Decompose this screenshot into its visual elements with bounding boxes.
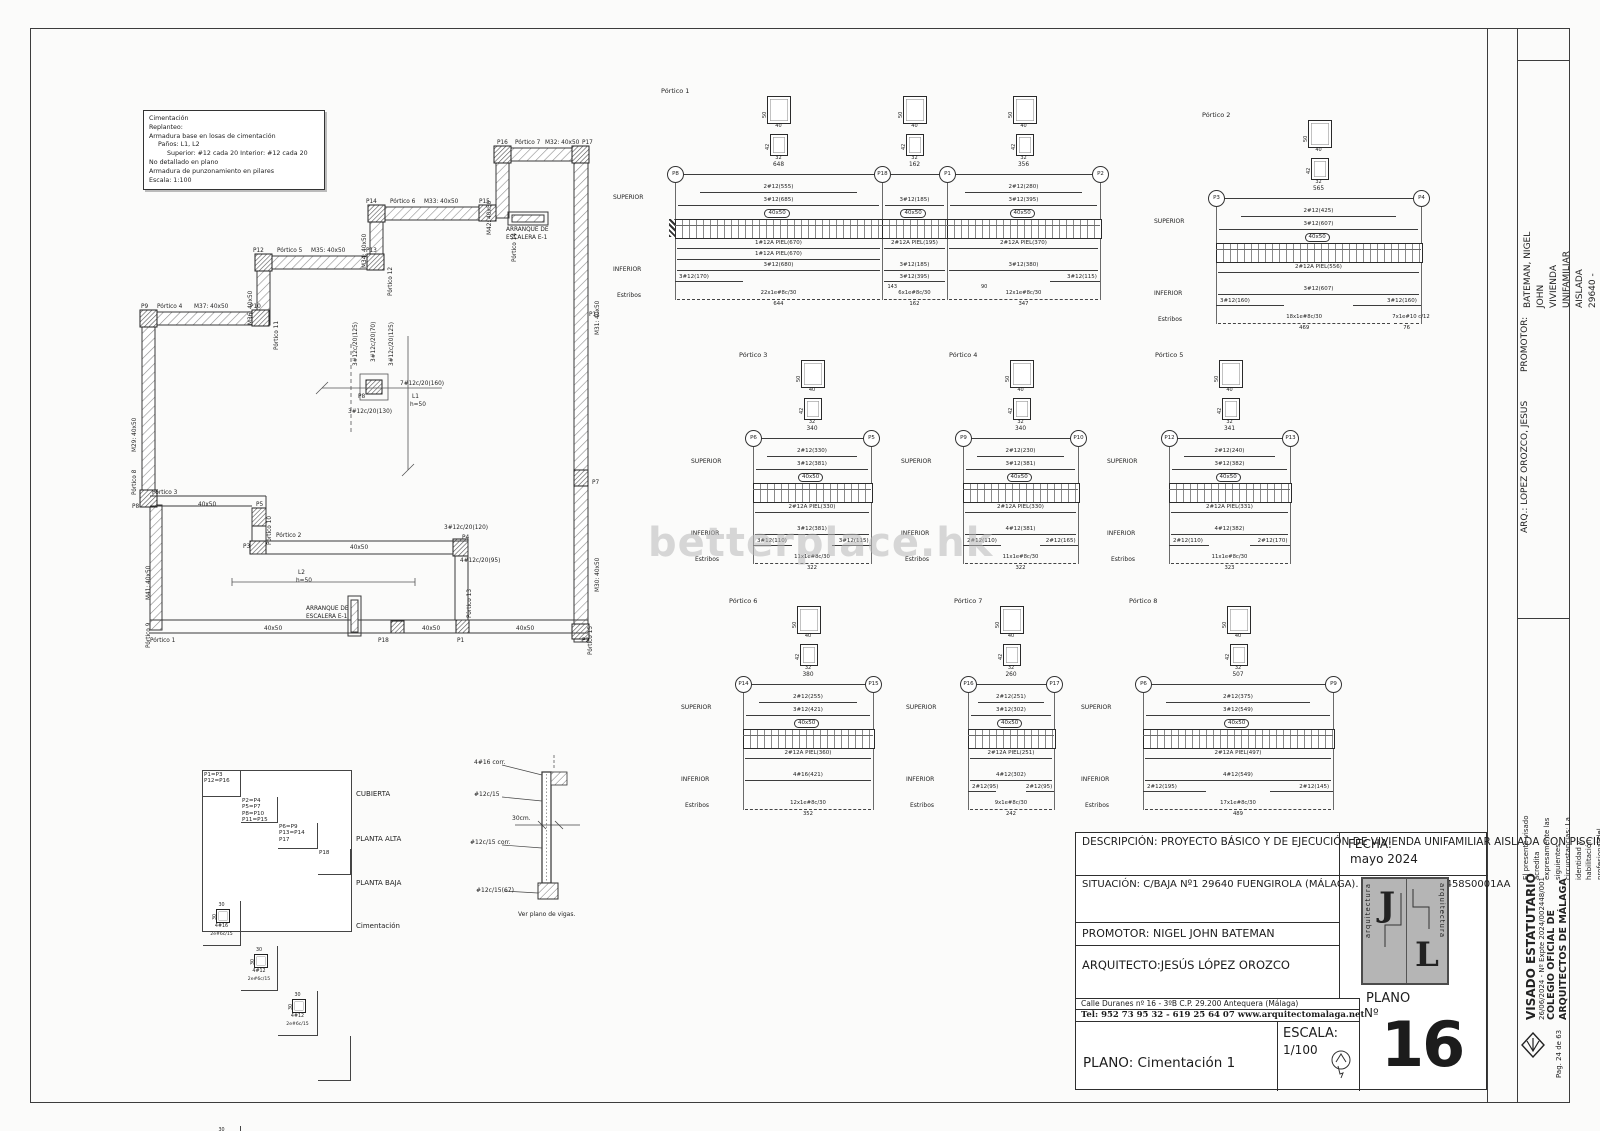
rebar-label: 2#12(110) bbox=[1173, 538, 1203, 545]
piel-label: 2#12A PIEL(556) bbox=[1216, 264, 1421, 271]
piel-line bbox=[970, 758, 1052, 759]
section-dim-label: 32 bbox=[1003, 665, 1019, 672]
beam-size-label: 40x50 bbox=[1007, 473, 1032, 482]
schedule-level-label: Cimentación bbox=[356, 922, 400, 930]
beam-size-label: 40x50 bbox=[1216, 473, 1241, 482]
section-dim-label: 32 bbox=[770, 155, 786, 162]
plan-label: L1 bbox=[412, 394, 419, 401]
rebar-label: 2#12(280) bbox=[947, 184, 1100, 191]
plan-label: P3 bbox=[243, 544, 250, 551]
support-guide bbox=[1078, 446, 1079, 564]
piel-line bbox=[745, 758, 871, 759]
row-label-inferior: INFERIOR bbox=[1154, 290, 1182, 297]
beam-band bbox=[1143, 729, 1335, 749]
rebar-label: 2#12(425) bbox=[1216, 208, 1421, 215]
plan-label: 40x50 bbox=[516, 626, 534, 633]
plan-label: Pórtico 7 bbox=[515, 140, 540, 147]
rebar-line bbox=[950, 205, 1097, 206]
rebar-label: 2#12(145) bbox=[1261, 784, 1329, 791]
plan-label: M42: 40x50 bbox=[487, 201, 494, 235]
margin-visado-block: VISADO ESTATUTARIO 26/06/2024 - Nº Expte… bbox=[1524, 873, 1570, 1020]
tb-line bbox=[1339, 833, 1340, 998]
portico-title: Pórtico 8 bbox=[1129, 598, 1157, 605]
section-dim-label: 40 bbox=[767, 123, 789, 130]
piel-line bbox=[1145, 758, 1331, 759]
visado-expte: 26/06/2024 - Nº Expte 2024/002448/001 bbox=[1538, 873, 1546, 1020]
frame-top bbox=[30, 28, 1570, 29]
stirrup-dim-line bbox=[884, 299, 945, 300]
rebar-line bbox=[753, 545, 792, 546]
piel-line bbox=[677, 259, 880, 260]
stirrup-dim-line bbox=[755, 563, 869, 564]
rebar-label: 3#12(549) bbox=[1143, 707, 1333, 714]
rebar-line bbox=[1270, 791, 1333, 792]
rebar-line bbox=[746, 715, 870, 716]
rebar-line bbox=[675, 281, 743, 282]
piel-label: 2#12A PIEL(195) bbox=[882, 240, 947, 247]
row-label-inferior: INFERIOR bbox=[1081, 776, 1109, 783]
tb-arquitecto: ARQUITECTO:JESÚS LÓPEZ OROZCO bbox=[1082, 958, 1290, 972]
plan-label: Pórtico 1 bbox=[150, 638, 175, 645]
piel-label: 2#12A PIEL(360) bbox=[743, 750, 873, 757]
piel-line bbox=[965, 512, 1076, 513]
rebar-line bbox=[1026, 791, 1054, 792]
plan-label: P12 bbox=[253, 248, 264, 255]
rebar-line bbox=[968, 791, 996, 792]
plan-label: Pórtico 12 bbox=[388, 267, 395, 296]
rebar-line bbox=[1050, 281, 1100, 282]
foundation-plan bbox=[120, 130, 620, 680]
wall-section-detail: 4#16 corr. #12c/15 30cm. #12c/15 corr. #… bbox=[460, 745, 670, 960]
section-dim-label: 40 bbox=[1013, 123, 1035, 130]
rebar-label: 3#12(160) bbox=[1343, 298, 1417, 305]
column-section-big bbox=[1219, 360, 1243, 388]
beam-band-axis bbox=[1143, 735, 1333, 736]
span-length-label: 648 bbox=[675, 162, 882, 169]
section-dim-label: 40 bbox=[1219, 387, 1241, 394]
plan-label: M30: 40x50 bbox=[595, 558, 602, 592]
rebar-line bbox=[970, 780, 1052, 781]
frame-left bbox=[30, 28, 31, 1103]
jl-logo: arquitectura arquitectura J L bbox=[1361, 877, 1449, 985]
plan-label: h=50 bbox=[296, 578, 312, 585]
stirrup-dim-line bbox=[745, 809, 871, 810]
tb-fecha-value: mayo 2024 bbox=[1350, 852, 1418, 866]
rebar-label: 3#12(381) bbox=[753, 461, 871, 468]
schedule-header-cell: P1=P3 P12=P16 bbox=[203, 771, 241, 797]
tb-line bbox=[1076, 1021, 1359, 1022]
beam-band-axis bbox=[1216, 249, 1421, 250]
margin-arquitecto: ARQ.: LOPEZ OROZCO, JESUS bbox=[1522, 401, 1529, 533]
wall-label-horiz: #12c/15 corr. bbox=[470, 839, 511, 846]
piel-label: 1#12A PIEL(670) bbox=[675, 240, 882, 247]
column-section-big bbox=[1013, 96, 1037, 124]
cell-dim-left: 30 bbox=[250, 959, 257, 965]
schedule-header-cell: P6=P9 P13=P14 P17 bbox=[278, 823, 318, 849]
cell-bars: 4#16 bbox=[203, 923, 240, 930]
column-section-small bbox=[804, 398, 822, 420]
tb-line bbox=[1076, 945, 1339, 946]
row-label-inferior: INFERIOR bbox=[906, 776, 934, 783]
schedule-cell bbox=[318, 1036, 351, 1081]
rebar-label: 3#12(382) bbox=[1169, 461, 1290, 468]
plan-label: P17 bbox=[582, 140, 593, 147]
support-line bbox=[1169, 438, 1290, 439]
rebar-line bbox=[1241, 216, 1397, 217]
rebar-label: 3#12(115) bbox=[826, 538, 868, 545]
section-dim-label: 50 bbox=[995, 622, 1002, 628]
row-label-inferior: INFERIOR bbox=[681, 776, 709, 783]
section-dim-label: 42 bbox=[1306, 168, 1313, 174]
stirrup-label: 12x1e#8c/30 bbox=[743, 800, 873, 807]
row-label-inferior: INFERIOR bbox=[901, 530, 929, 537]
tb-fecha-label: FECHA: bbox=[1348, 837, 1392, 851]
cell-dim-top: 30 bbox=[203, 1127, 240, 1131]
row-label-superior: SUPERIOR bbox=[906, 704, 936, 711]
beam-size-label: 40x50 bbox=[900, 209, 925, 218]
portico: Pórtico 5P12P13341504042322#12(240)3#12(… bbox=[1107, 352, 1363, 584]
frame-margin-divider bbox=[1517, 28, 1518, 1102]
plan-label: 40x50 bbox=[264, 626, 282, 633]
section-dim-label: 40 bbox=[797, 633, 819, 640]
drawing-sheet: CimentaciónReplanteo:Armadura base en lo… bbox=[0, 0, 1600, 1131]
tb-tel: Tel: 952 73 95 32 - 619 25 64 07 www.arq… bbox=[1081, 1010, 1364, 1020]
dim-annotation: 143 bbox=[888, 284, 898, 291]
beam-size-label: 40x50 bbox=[997, 719, 1022, 728]
tb-plano-name: PLANO: Cimentación 1 bbox=[1083, 1055, 1235, 1071]
span-length-label: 341 bbox=[1169, 426, 1290, 433]
stirrup-dim-line bbox=[949, 299, 1098, 300]
beam-band-axis bbox=[753, 489, 871, 490]
rebar-line bbox=[1184, 456, 1276, 457]
section-dim-label: 40 bbox=[1010, 387, 1032, 394]
rebar-label: 3#12(395) bbox=[947, 197, 1100, 204]
cell-stirrups: 2e#6c/15 bbox=[203, 931, 240, 938]
beam-band-axis bbox=[947, 225, 1100, 226]
section-dim-label: 32 bbox=[1016, 155, 1032, 162]
plan-label: 3#12c/20(125) bbox=[353, 322, 360, 366]
rebar-line bbox=[767, 456, 857, 457]
column-section-small bbox=[1222, 398, 1240, 420]
rebar-line bbox=[1169, 545, 1209, 546]
rebar-label: 3#12(421) bbox=[743, 707, 873, 714]
rebar-line bbox=[971, 715, 1051, 716]
plan-label: P18 bbox=[378, 638, 389, 645]
rebar-label: 3#12(381) bbox=[753, 526, 871, 533]
support-line bbox=[963, 438, 1078, 439]
section-dim-label: 50 bbox=[792, 622, 799, 628]
stirrup-label: 17x1e#8c/30 bbox=[1143, 800, 1333, 807]
rebar-label: 2#12(95) bbox=[972, 784, 998, 791]
column-section-big bbox=[1308, 120, 1332, 148]
row-label-superior: SUPERIOR bbox=[681, 704, 711, 711]
beam-size-label: 40x50 bbox=[1224, 719, 1249, 728]
column-section-big bbox=[1227, 606, 1251, 634]
section-dim-label: 32 bbox=[1311, 179, 1327, 186]
rebar-line bbox=[745, 780, 871, 781]
plan-label: Pórtico 2 bbox=[276, 533, 301, 540]
stirrup-label: 7x1e#10 c/12 bbox=[1392, 314, 1421, 321]
span-length-label: 380 bbox=[743, 672, 873, 679]
rebar-line bbox=[963, 545, 1001, 546]
piel-line bbox=[1218, 272, 1419, 273]
section-dim-label: 32 bbox=[1013, 419, 1029, 426]
column-section-small bbox=[1016, 134, 1034, 156]
section-dim-label: 40 bbox=[1308, 147, 1330, 154]
column-section-small bbox=[906, 134, 924, 156]
rebar-line bbox=[1166, 702, 1310, 703]
rebar-line bbox=[965, 192, 1081, 193]
section-dim-label: 42 bbox=[1217, 408, 1224, 414]
column-section-small bbox=[770, 134, 788, 156]
support-guide bbox=[1421, 206, 1422, 324]
rebar-label: 2#12(255) bbox=[743, 694, 873, 701]
stirrup-label: 11x1e#8c/30 bbox=[963, 554, 1078, 561]
visado-title: VISADO ESTATUTARIO bbox=[1524, 873, 1538, 1020]
piel-label: 2#12A PIEL(331) bbox=[1169, 504, 1290, 511]
rebar-label: 3#12(302) bbox=[968, 707, 1054, 714]
rebar-label: 2#12(110) bbox=[967, 538, 997, 545]
rebar-label: 2#12(251) bbox=[968, 694, 1054, 701]
column-schedule-table: P1=P3 P12=P16P2=P4 P5=P7 P8=P10 P11=P15P… bbox=[202, 770, 352, 932]
plan-label: 3#12c/20(70) bbox=[371, 322, 378, 362]
plan-label: M41: 40x50 bbox=[146, 566, 153, 600]
rebar-label: 3#12(680) bbox=[675, 262, 882, 269]
support-guide bbox=[873, 692, 874, 810]
stirrup-total: 644 bbox=[675, 301, 882, 308]
schedule-cell: 30304#162e#6c/15 bbox=[203, 901, 241, 946]
stirrup-label: 18x1e#8c/30 bbox=[1216, 314, 1392, 321]
rebar-label: 4#12(381) bbox=[963, 526, 1078, 533]
plan-label: ARRANQUE DE bbox=[306, 606, 349, 613]
wall-label-bars: 4#16 corr. bbox=[474, 759, 506, 766]
rebar-line bbox=[1171, 534, 1288, 535]
section-dim-label: 42 bbox=[795, 654, 802, 660]
rebar-line bbox=[832, 545, 871, 546]
tb-plano-num: 16 bbox=[1381, 1008, 1463, 1081]
plan-label: 40x50 bbox=[422, 626, 440, 633]
portico: Pórtico 8P6P9507504042322#12(375)3#12(54… bbox=[1081, 598, 1406, 830]
stirrup-total: 162 bbox=[882, 301, 947, 308]
beam-band-axis bbox=[675, 225, 882, 226]
portico-title: Pórtico 7 bbox=[954, 598, 982, 605]
beam-band bbox=[947, 219, 1102, 239]
cell-bars: 4#12 bbox=[278, 1013, 317, 1020]
rebar-line bbox=[1145, 780, 1331, 781]
rebar-label: 2#12(555) bbox=[675, 184, 882, 191]
portico: Pórtico 1P8P18P1P2648504042322#12(555)3#… bbox=[613, 88, 1173, 320]
tb-line bbox=[1277, 1021, 1278, 1091]
rebar-line bbox=[678, 205, 879, 206]
note-line: Cimentación bbox=[149, 115, 319, 124]
stirrup-label: 9x1e#8c/30 bbox=[968, 800, 1054, 807]
plan-label: M36: 40x50 bbox=[248, 291, 255, 325]
beam-size-label: 40x50 bbox=[1010, 209, 1035, 218]
rebar-line bbox=[966, 469, 1075, 470]
rebar-line bbox=[1216, 305, 1284, 306]
beam-band bbox=[882, 219, 949, 239]
plan-label: P11 bbox=[589, 312, 600, 319]
row-label-inferior: INFERIOR bbox=[1107, 530, 1135, 537]
stirrup-label: 22x1e#8c/30 bbox=[675, 290, 882, 297]
rebar-line bbox=[949, 270, 1098, 271]
rebar-label: 3#12(381) bbox=[963, 461, 1078, 468]
rebar-line bbox=[977, 456, 1064, 457]
plan-label: P1 bbox=[457, 638, 464, 645]
section-dim-label: 50 bbox=[898, 112, 905, 118]
rebar-label: 3#12(160) bbox=[1220, 298, 1250, 305]
plan-label: M29: 40x50 bbox=[132, 418, 139, 452]
row-label-estribos: Estribos bbox=[695, 556, 719, 563]
stirrup-total: 242 bbox=[968, 811, 1054, 818]
wall-label-note: Ver plano de vigas. bbox=[518, 911, 575, 918]
plan-label: ARRANQUE DE bbox=[506, 227, 549, 234]
stirrup-label: 6x1e#8c/30 bbox=[882, 290, 947, 297]
stirrup-label: 11x1e#8c/30 bbox=[753, 554, 871, 561]
rebar-line bbox=[1172, 469, 1287, 470]
column-section-small bbox=[1230, 644, 1248, 666]
margin-page-number: Pag. 24 de 63 bbox=[1556, 1030, 1563, 1078]
piel-label: 2#12A PIEL(497) bbox=[1143, 750, 1333, 757]
rebar-label: 3#12(685) bbox=[675, 197, 882, 204]
rebar-line bbox=[885, 205, 944, 206]
row-label-estribos: Estribos bbox=[905, 556, 929, 563]
column-section-big bbox=[767, 96, 791, 124]
row-label-superior: SUPERIOR bbox=[1081, 704, 1111, 711]
beam-size-label: 40x50 bbox=[764, 209, 789, 218]
plan-label: ESCALERA E-1 bbox=[506, 235, 547, 242]
section-dim-label: 42 bbox=[1225, 654, 1232, 660]
plan-label: 40x50 bbox=[198, 502, 216, 509]
column-section-small bbox=[1311, 158, 1329, 180]
beam-band-axis bbox=[1169, 489, 1290, 490]
section-dim-label: 50 bbox=[1214, 376, 1221, 382]
section-dim-label: 32 bbox=[1230, 665, 1246, 672]
beam-band bbox=[968, 729, 1056, 749]
span-length-label: 356 bbox=[947, 162, 1100, 169]
visado-colegio: COLEGIO OFICIAL DE ARQUITECTOS DE MÁLAGA bbox=[1546, 873, 1570, 1020]
cell-dim-left: 30 bbox=[212, 914, 219, 920]
plan-label: M32: 40x50 bbox=[545, 140, 579, 147]
rebar-label: 2#12(330) bbox=[753, 448, 871, 455]
margin-tick-mid bbox=[1517, 618, 1569, 619]
cell-dim-top: 30 bbox=[278, 992, 317, 999]
portico-title: Pórtico 5 bbox=[1155, 352, 1183, 359]
plan-label: Pórtico 11 bbox=[274, 321, 281, 350]
section-dim-label: 32 bbox=[800, 665, 816, 672]
margin-tick-top bbox=[1517, 60, 1569, 61]
stirrup-label: 12x1e#8c/30 bbox=[947, 290, 1100, 297]
section-dim-label: 32 bbox=[1222, 419, 1238, 426]
beam-band-axis bbox=[743, 735, 873, 736]
span-length-label: 162 bbox=[882, 162, 947, 169]
beam-band bbox=[753, 483, 873, 503]
wall-label-width: 30cm. bbox=[512, 815, 531, 822]
beam-size-label: 40x50 bbox=[794, 719, 819, 728]
rebar-line bbox=[1353, 305, 1421, 306]
beam-band-axis bbox=[968, 735, 1054, 736]
support-line bbox=[1216, 198, 1421, 199]
cell-dim-top: 30 bbox=[203, 902, 240, 909]
rebar-line bbox=[1219, 229, 1418, 230]
tb-escala-value: 1/100 bbox=[1283, 1043, 1318, 1057]
cell-bars: 4#12 bbox=[241, 968, 277, 975]
beam-band bbox=[675, 219, 884, 239]
beam-size-label: 40x50 bbox=[1305, 233, 1330, 242]
plan-label: M33: 40x50 bbox=[424, 199, 458, 206]
portico-title: Pórtico 2 bbox=[1202, 112, 1230, 119]
wall-section-graphic bbox=[460, 745, 670, 960]
schedule-level-label: PLANTA BAJA bbox=[356, 879, 401, 887]
beam-size-label: 40x50 bbox=[798, 473, 823, 482]
stirrup-total: 489 bbox=[1143, 811, 1333, 818]
plan-label: 4#12c/20(95) bbox=[460, 558, 500, 565]
section-dim-label: 50 bbox=[1303, 136, 1310, 142]
beam-band bbox=[1216, 243, 1423, 263]
plan-label: Pórtico 4 bbox=[157, 304, 182, 311]
stirrup-dim-line bbox=[677, 299, 880, 300]
piel-line bbox=[1171, 512, 1288, 513]
tb-address: Calle Duranes nº 16 - 3ºB C.P. 29.200 An… bbox=[1081, 999, 1298, 1008]
rebar-label: 3#12(185) bbox=[882, 197, 947, 204]
rebar-line bbox=[756, 469, 868, 470]
wall-label-foot: #12c/15(67) bbox=[476, 887, 514, 894]
plan-label: ESCALERA E-1 bbox=[306, 614, 347, 621]
piel-label: 2#12A PIEL(251) bbox=[968, 750, 1054, 757]
plan-label: P8 bbox=[358, 394, 365, 401]
rebar-label: 2#12(95) bbox=[1021, 784, 1052, 791]
rebar-label: 3#12(110) bbox=[757, 538, 787, 545]
stirrup-total: 323 bbox=[1169, 565, 1290, 572]
rebar-line bbox=[1040, 545, 1078, 546]
plan-label: 3#12c/20(130) bbox=[348, 409, 392, 416]
row-label-estribos: Estribos bbox=[1111, 556, 1135, 563]
rebar-label: 2#12(375) bbox=[1143, 694, 1333, 701]
row-label-estribos: Estribos bbox=[685, 802, 709, 809]
span-length-label: 340 bbox=[753, 426, 871, 433]
rebar-label: 2#12(170) bbox=[1244, 538, 1288, 545]
section-dim-label: 40 bbox=[1227, 633, 1249, 640]
margin-promotor-value: BATEMAN, NIGEL JOHN VIVIENDA UNIFAMILIAR… bbox=[1522, 230, 1600, 308]
stirrup-dim-line bbox=[1145, 809, 1331, 810]
plan-label: h=50 bbox=[410, 402, 426, 409]
cell-stirrups: 2e#6c/15 bbox=[241, 976, 277, 983]
beam-band bbox=[743, 729, 875, 749]
row-label-inferior: INFERIOR bbox=[691, 530, 719, 537]
piel-line bbox=[949, 248, 1098, 249]
span-length-label: 507 bbox=[1143, 672, 1333, 679]
plan-label: P8 bbox=[132, 504, 139, 511]
column-section-small bbox=[800, 644, 818, 666]
tb-escala-label: ESCALA: bbox=[1283, 1026, 1338, 1041]
schedule-level-label: CUBIERTA bbox=[356, 790, 390, 798]
beam-band bbox=[963, 483, 1080, 503]
section-dim-label: 40 bbox=[801, 387, 823, 394]
portico: Pórtico 2P3P4565504042322#12(425)3#12(60… bbox=[1154, 112, 1494, 344]
stirrup-dim-line bbox=[1394, 323, 1419, 324]
section-dim-label: 50 bbox=[1008, 112, 1015, 118]
support-line bbox=[753, 438, 871, 439]
colegio-logo-icon bbox=[1521, 1032, 1545, 1058]
section-dim-label: 50 bbox=[1222, 622, 1229, 628]
row-label-estribos: Estribos bbox=[1158, 316, 1182, 323]
column-section-big bbox=[1010, 360, 1034, 388]
stirrup-total: 347 bbox=[947, 301, 1100, 308]
rebar-line bbox=[759, 702, 858, 703]
plan-label: P5 bbox=[256, 502, 263, 509]
rebar-label: 2#12(230) bbox=[963, 448, 1078, 455]
rebar-label: 4#16(421) bbox=[743, 772, 873, 779]
